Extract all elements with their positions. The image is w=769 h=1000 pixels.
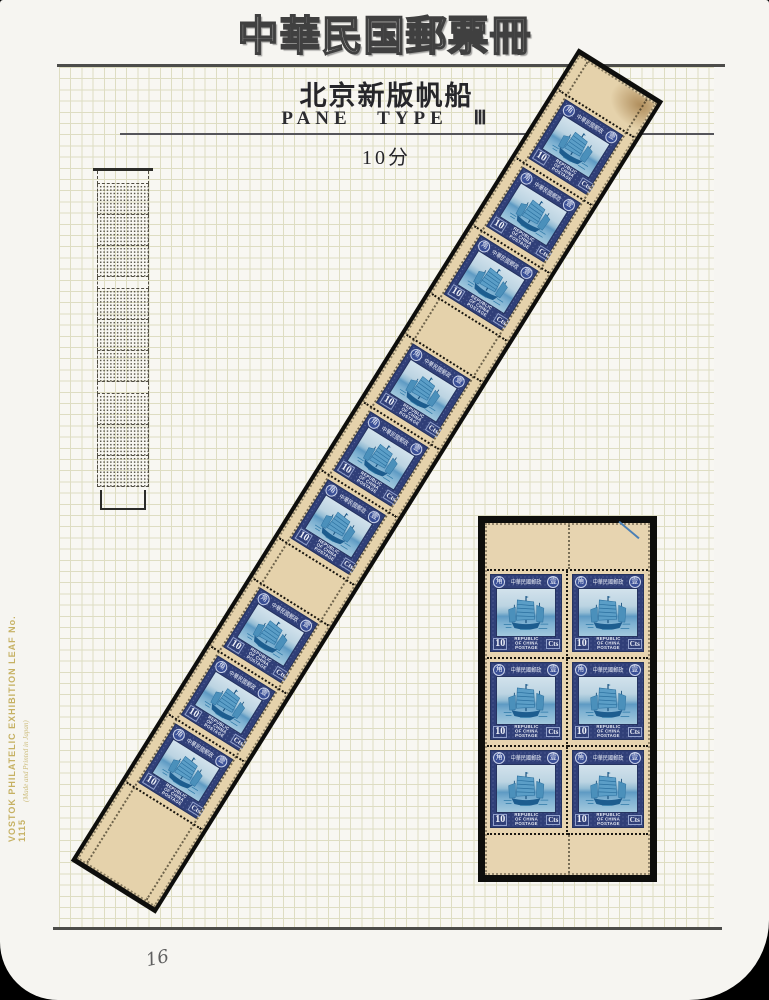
stamp-unit: Cts <box>628 815 642 825</box>
medallion-left: 角 <box>575 664 587 676</box>
stamp-top-inscription: 中華民國郵政 <box>511 753 542 762</box>
stamp-bottom-band: 10 REPUBLIC OF CHINA POSTAGE Cts <box>573 813 643 827</box>
stamp-country-inscription: REPUBLIC OF CHINA POSTAGE <box>596 725 620 738</box>
stamp-unit: Cts <box>546 639 560 649</box>
junk-stamp: 角 中華民國郵政 壹 10 <box>487 571 568 659</box>
junk-ship-illustration <box>579 589 637 636</box>
stamp-bottom-band: 10 REPUBLIC OF CHINA POSTAGE Cts <box>491 725 561 739</box>
stamp-vignette <box>496 676 556 725</box>
diagram-bottom-bracket <box>100 490 146 510</box>
block-stamp-grid: 角 中華民國郵政 壹 10 <box>487 571 648 835</box>
stamp-top-band: 角 中華民國郵政 壹 <box>491 751 561 764</box>
stamp-unit: Cts <box>628 727 642 737</box>
diagram-stamp <box>97 289 149 320</box>
album-page: 中華民国郵票冊 北京新版帆船 PANE TYPE Ⅲ 10分 <box>0 0 769 1000</box>
stamp-vignette <box>496 588 556 637</box>
junk-stamp: 角 中華民國郵政 壹 10 <box>487 747 568 835</box>
medallion-right: 壹 <box>629 664 641 676</box>
stamp-bottom-band: 10 REPUBLIC OF CHINA POSTAGE Cts <box>573 725 643 739</box>
diagram-selvage <box>97 171 149 184</box>
stamp-unit: Cts <box>628 639 642 649</box>
junk-ship-illustration <box>579 677 637 724</box>
stamp-frame: 角 中華民國郵政 壹 10 <box>572 750 644 828</box>
stamp-top-inscription: 中華民國郵政 <box>592 577 623 586</box>
stamp-frame: 角 中華民國郵政 壹 10 <box>490 574 562 652</box>
stamp-unit: Cts <box>546 815 560 825</box>
stamp-top-band: 角 中華民國郵政 壹 <box>573 663 643 676</box>
junk-stamp: 角 中華民國郵政 壹 10 <box>568 659 649 747</box>
stamp-top-band: 角 中華民國郵政 壹 <box>491 575 561 588</box>
stamp-vignette <box>578 764 638 813</box>
blue-pen-mark <box>618 521 639 539</box>
diagram-gutter <box>97 382 149 394</box>
stamp-country-inscription: REPUBLIC OF CHINA POSTAGE <box>596 813 620 826</box>
stamp-vignette <box>578 588 638 637</box>
stamp-bottom-band: 10 REPUBLIC OF CHINA POSTAGE Cts <box>491 637 561 651</box>
stamp-frame: 角 中華民國郵政 壹 10 <box>490 662 562 740</box>
medallion-left: 角 <box>575 576 587 588</box>
diagram-stamp <box>97 215 149 246</box>
diagram-stamp <box>97 456 149 487</box>
stamp-top-band: 角 中華民國郵政 壹 <box>573 575 643 588</box>
stamp-unit: Cts <box>272 666 289 682</box>
stamp-country-inscription: REPUBLIC OF CHINA POSTAGE <box>515 725 539 738</box>
stamp-frame: 角 中華民國郵政 壹 10 <box>572 662 644 740</box>
stamp-unit: Cts <box>425 421 442 437</box>
strip-layout-diagram <box>95 168 151 510</box>
stamp-country-inscription: REPUBLIC OF CHINA POSTAGE <box>515 813 539 826</box>
junk-stamp: 角 中華民國郵政 壹 10 <box>568 571 649 659</box>
stamp-value: 10 <box>493 814 507 826</box>
diagram-gutter <box>97 277 149 289</box>
stamp-value: 10 <box>575 814 589 826</box>
medallion-right: 壹 <box>547 664 559 676</box>
stamp-unit: Cts <box>187 801 204 817</box>
stamp-unit: Cts <box>230 733 247 749</box>
album-title: 中華民国郵票冊 <box>0 2 769 62</box>
medallion-right: 壹 <box>629 576 641 588</box>
pencil-page-number: 16 <box>144 946 171 971</box>
stamp-frame: 角 中華民國郵政 壹 10 <box>490 750 562 828</box>
stamp-bottom-band: 10 REPUBLIC OF CHINA POSTAGE Cts <box>573 637 643 651</box>
stamp-top-inscription: 中華民國郵政 <box>511 577 542 586</box>
top-rule <box>57 64 725 67</box>
medallion-left: 角 <box>493 664 505 676</box>
medallion-left: 角 <box>493 576 505 588</box>
stamp-frame: 角 中華民國郵政 壹 10 <box>572 574 644 652</box>
block-top-selvage <box>487 525 648 571</box>
medallion-right: 壹 <box>547 752 559 764</box>
block-mount: 角 中華民國郵政 壹 10 <box>478 516 657 882</box>
stamp-unit: Cts <box>577 177 594 193</box>
stamp-unit: Cts <box>382 489 399 505</box>
junk-ship-illustration <box>497 677 555 724</box>
junk-ship-illustration <box>497 589 555 636</box>
stamp-top-inscription: 中華民國郵政 <box>592 753 623 762</box>
stamp-value: 10 <box>575 726 589 738</box>
diagram-stamp <box>97 425 149 456</box>
stamp-unit: Cts <box>535 245 552 261</box>
diagram-stamp <box>97 246 149 277</box>
junk-stamp: 角 中華民國郵政 壹 10 <box>487 659 568 747</box>
block-bottom-selvage <box>487 835 648 873</box>
stamp-top-inscription: 中華民國郵政 <box>592 665 623 674</box>
leaf-imprint-subtext: (Made and Printed in Japan) <box>22 632 30 802</box>
medallion-left: 角 <box>575 752 587 764</box>
diagram-stamp <box>97 184 149 215</box>
stamp-top-band: 角 中華民國郵政 壹 <box>573 751 643 764</box>
junk-stamp: 角 中華民國郵政 壹 10 <box>568 747 649 835</box>
diagram-stamp <box>97 351 149 382</box>
medallion-left: 角 <box>493 752 505 764</box>
medallion-right: 壹 <box>629 752 641 764</box>
stamp-bottom-band: 10 REPUBLIC OF CHINA POSTAGE Cts <box>491 813 561 827</box>
bottom-rule <box>53 927 722 930</box>
stamp-value: 10 <box>493 726 507 738</box>
junk-ship-illustration <box>579 765 637 812</box>
diagram-stamp <box>97 320 149 351</box>
stamp-vignette <box>496 764 556 813</box>
stamp-country-inscription: REPUBLIC OF CHINA POSTAGE <box>515 637 539 650</box>
stamp-top-band: 角 中華民國郵政 壹 <box>491 663 561 676</box>
junk-ship-illustration <box>497 765 555 812</box>
block-of-six: 角 中華民國郵政 壹 10 <box>485 523 650 875</box>
stamp-country-inscription: REPUBLIC OF CHINA POSTAGE <box>596 637 620 650</box>
stamp-unit: Cts <box>493 313 510 329</box>
diagram-stamp <box>97 394 149 425</box>
stamp-unit: Cts <box>546 727 560 737</box>
stamp-top-inscription: 中華民國郵政 <box>511 665 542 674</box>
stamp-vignette <box>578 676 638 725</box>
stamp-value: 10 <box>575 638 589 650</box>
medallion-right: 壹 <box>547 576 559 588</box>
stamp-unit: Cts <box>340 557 357 573</box>
stamp-value: 10 <box>493 638 507 650</box>
